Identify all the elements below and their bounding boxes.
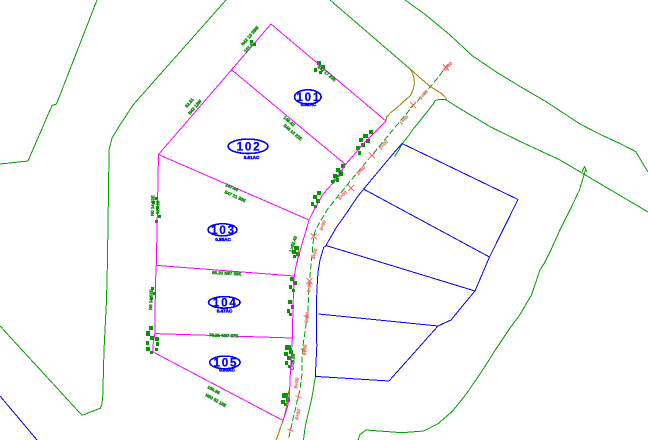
svg-text:5+50: 5+50 bbox=[302, 344, 309, 356]
svg-text:0.55AC: 0.55AC bbox=[215, 237, 231, 242]
svg-text:76.21 N87 07E: 76.21 N87 07E bbox=[209, 333, 239, 339]
svg-text:0.61AC: 0.61AC bbox=[244, 155, 260, 160]
svg-text:5+00: 5+00 bbox=[304, 312, 311, 324]
svg-text:N0 14 52E: N0 14 52E bbox=[148, 289, 154, 310]
svg-text:102: 102 bbox=[237, 140, 262, 153]
svg-text:125.19: 125.19 bbox=[155, 200, 160, 214]
svg-text:0.47AC: 0.47AC bbox=[217, 308, 233, 313]
svg-text:0.52AC: 0.52AC bbox=[301, 102, 317, 107]
svg-text:103: 103 bbox=[211, 224, 236, 237]
svg-text:0.50AC: 0.50AC bbox=[219, 368, 235, 373]
